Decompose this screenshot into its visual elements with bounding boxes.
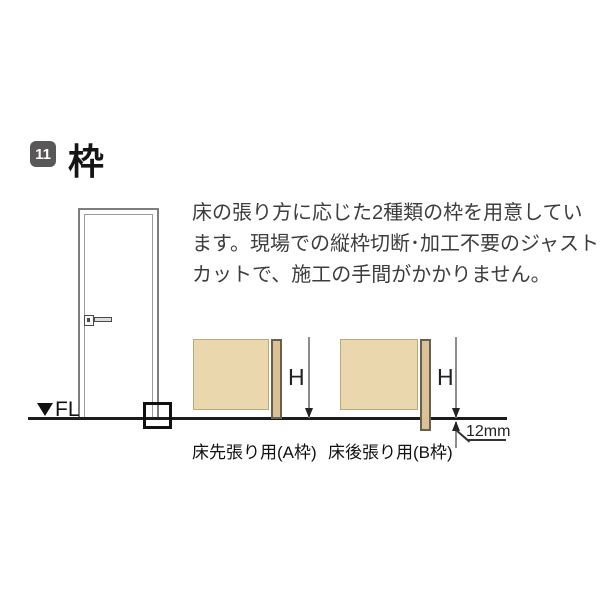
section-number-badge: 11 — [30, 141, 56, 167]
section-a-vertical-frame — [271, 339, 282, 419]
section-a-caption: 床先張り用(A枠) — [192, 438, 317, 463]
section-a-dimension-line — [308, 337, 310, 418]
description-line-3: カットで、施工の手間がかかりません。 — [192, 260, 600, 291]
page-title: 枠 — [68, 133, 105, 185]
corner-detail-highlight-box — [143, 402, 172, 429]
section-a-height-label: H — [288, 364, 305, 391]
description-paragraph: 床の張り方に応じた2種類の枠を用意してい ます。現場での縦枠切断･加工不要のジャ… — [192, 198, 600, 291]
section-b-vertical-frame — [420, 339, 431, 431]
description-line-1: 床の張り方に応じた2種類の枠を用意してい — [192, 198, 600, 229]
door-handle-lever-icon — [94, 317, 112, 322]
section-a-arrow-down-icon — [305, 408, 313, 418]
section-b-arrow-down-icon — [452, 408, 460, 418]
section-a-wall — [193, 339, 269, 410]
door-handle-dot — [87, 318, 90, 322]
section-b-height-label: H — [437, 364, 454, 391]
section-b-dimension-line — [455, 337, 457, 418]
section-b-caption: 床後張り用(B枠) — [328, 438, 453, 463]
offset-value-label: 12mm — [466, 423, 510, 441]
floor-level-triangle-icon — [37, 403, 53, 416]
floor-line — [28, 417, 507, 420]
description-line-2: ます。現場での縦枠切断･加工不要のジャスト — [192, 229, 600, 260]
catalog-page: 11 枠 床の張り方に応じた2種類の枠を用意してい ます。現場での縦枠切断･加工… — [0, 0, 600, 600]
section-b-wall — [340, 339, 418, 410]
